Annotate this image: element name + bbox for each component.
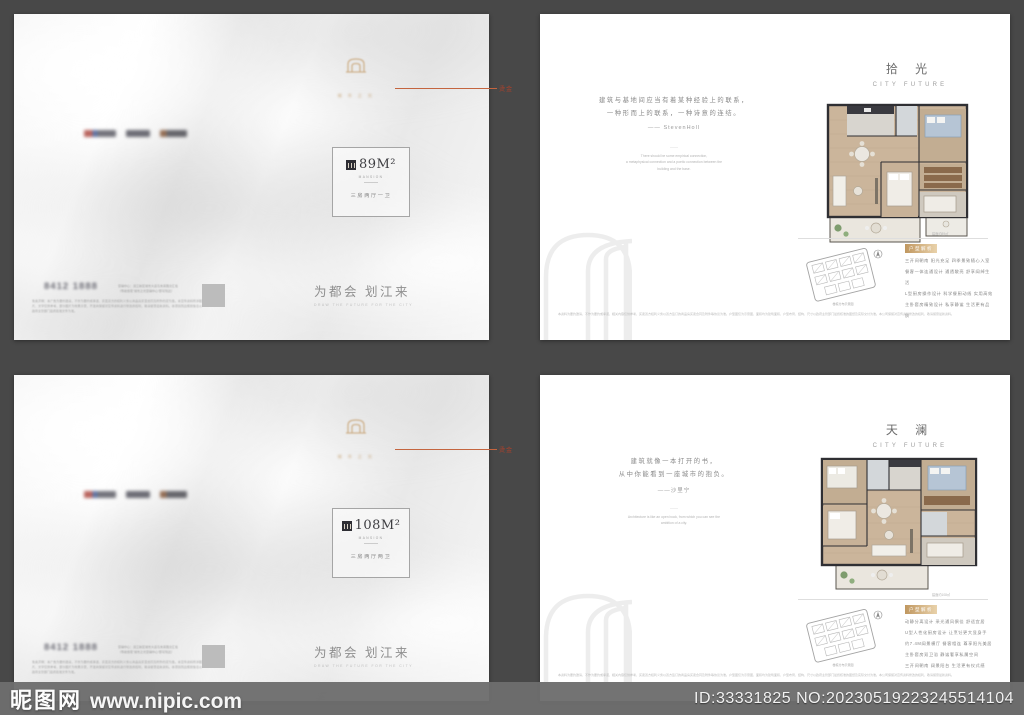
quote-divider: —— [566, 144, 782, 149]
area-badge: 108M² MANSION 三房两厅两卫 [332, 508, 410, 578]
developer-logo-3 [160, 491, 187, 498]
cover-tagline: 为都会 划江来 DRAW THE FUTURE FOR THE CITY [314, 281, 476, 307]
sales-address: 营销中心：滨江新区城市大道与未来路交汇处 （导航搜索“城市之光营销中心”即可到达… [118, 284, 202, 295]
badge-unit-type: 三房两厅两卫 [333, 553, 409, 560]
emblem-text: 城 市 之 光 [312, 93, 400, 99]
cover-page-108: 城 市 之 光 108M² MANSION 三房两厅两卫 为都会 划江来 DRA… [14, 375, 489, 701]
quote-line-1: 建筑就像一本打开的书， [586, 455, 762, 468]
plan-page-89: 建筑与基地间应当有着某种经验上的联系， 一种形而上的联系，一种诗意的连结。 ——… [540, 14, 1010, 340]
quote-line-2: 从中你能看到一座城市的抱负。 [586, 468, 762, 481]
cover-legal-text: 免责声明：本广告为要约邀请，不作为要约或承诺，买卖双方的权利义务以商品房买卖合同… [32, 299, 202, 314]
feature-line: 主卧套房双卫浴 静谧奢享私属空间 [905, 649, 993, 660]
feature-label: 户型解析 [905, 605, 937, 614]
developer-logos [84, 130, 187, 137]
gold-emblem: 城 市 之 光 [312, 56, 400, 99]
key-plan [800, 606, 886, 664]
watermark-bar: 昵图网 www.nipic.com ID:33331825 NO:2023051… [0, 682, 1024, 715]
tagline-cn: 为都会 划江来 [314, 642, 476, 661]
emblem-text: 城 市 之 光 [312, 454, 400, 460]
plan-page-108: 建筑就像一本打开的书， 从中你能看到一座城市的抱负。 ——沙里宁 —— Arch… [540, 375, 1010, 701]
tagline-en: DRAW THE FUTURE FOR THE CITY [314, 664, 476, 668]
plan-caption: 建面约108㎡ [932, 592, 950, 597]
area-badge: 89M² MANSION 三房两厅一卫 [332, 147, 410, 217]
badge-logo-icon [346, 160, 356, 170]
cover-legal-text: 免责声明：本广告为要约邀请，不作为要约或承诺，买卖双方的权利义务以商品房买卖合同… [32, 660, 202, 675]
arch-motif [540, 219, 632, 340]
developer-logo-1 [84, 130, 116, 137]
badge-area: 89M² [359, 157, 396, 172]
pavilion-icon [344, 417, 368, 435]
badge-brand: MANSION [333, 536, 409, 540]
hot-stamp-callout-line [395, 449, 497, 450]
quote-line-1: 建筑与基地间应当有着某种经验上的联系， [586, 94, 762, 107]
feature-label: 户型解析 [905, 244, 937, 253]
keyplan-caption: 楼栋分布示意图 [798, 663, 888, 667]
plan-caption: 建面约89㎡ [932, 231, 948, 236]
tagline-cn: 为都会 划江来 [314, 281, 476, 300]
qr-code-placeholder [202, 284, 225, 307]
feature-line: 动静分离设计 采光通风俱佳 舒适宜居 [905, 616, 993, 627]
developer-logo-1 [84, 491, 116, 498]
developer-logos [84, 491, 187, 498]
hot-stamp-callout-line [395, 88, 497, 89]
badge-unit-type: 三房两厅一卫 [333, 192, 409, 199]
floor-plan-89 [820, 100, 975, 246]
page-title-en: CITY FUTURE [858, 82, 962, 88]
quote-block: 建筑就像一本打开的书， 从中你能看到一座城市的抱负。 ——沙里宁 [586, 455, 762, 494]
image-id-text: ID:33331825 NO:20230519223245514104 [694, 690, 1014, 708]
feature-line: 主卧套房精致设计 私享静谧 生活更有品质 [905, 299, 993, 321]
hot-stamp-label: 烫金 [499, 445, 513, 454]
badge-area: 108M² [355, 518, 401, 533]
page-title-en: CITY FUTURE [858, 443, 962, 449]
north-arrow-icon [874, 250, 882, 258]
hot-stamp-label: 烫金 [499, 84, 513, 93]
page-title: 拾 光 CITY FUTURE [858, 60, 962, 88]
nipic-url: www.nipic.com [90, 690, 242, 714]
north-arrow-icon [874, 611, 882, 619]
section-divider [798, 599, 988, 600]
page-disclaimer: 本资料为要约邀请，不作为要约或承诺，相关内容仅供参考，买卖双方权利义务以双方签订… [558, 673, 992, 678]
floor-plan-108 [814, 453, 984, 593]
quote-divider: —— [566, 505, 782, 510]
sales-phone: 8412 1888 [44, 281, 98, 292]
quote-attribution: ——沙里宁 [586, 486, 762, 494]
feature-line: U型人性化厨房设计 让烹饪更大显身手 [905, 627, 993, 638]
feature-line: 约7.4M阔景横厅 餐客相连 尊享阳光美居 [905, 638, 993, 649]
feature-list: 动静分离设计 采光通风俱佳 舒适宜居 U型人性化厨房设计 让烹饪更大显身手 约7… [905, 616, 993, 671]
developer-logo-2 [126, 491, 150, 498]
nipic-logo: 昵图网 [10, 683, 82, 715]
page-disclaimer: 本资料为要约邀请，不作为要约或承诺，相关内容仅供参考，买卖双方权利义务以双方签订… [558, 312, 992, 317]
sales-address: 营销中心：滨江新区城市大道与未来路交汇处 （导航搜索“城市之光营销中心”即可到达… [118, 645, 202, 656]
qr-code-placeholder [202, 645, 225, 668]
key-plan [800, 245, 886, 303]
cover-tagline: 为都会 划江来 DRAW THE FUTURE FOR THE CITY [314, 642, 476, 668]
gold-emblem: 城 市 之 光 [312, 417, 400, 460]
page-title: 天 澜 CITY FUTURE [858, 421, 962, 449]
badge-divider [364, 543, 378, 544]
developer-logo-2 [126, 130, 150, 137]
quote-english: —— There should be some empirical connec… [566, 144, 782, 172]
section-divider [798, 238, 988, 239]
quote-line-2: 一种形而上的联系，一种诗意的连结。 [586, 107, 762, 120]
tagline-en: DRAW THE FUTURE FOR THE CITY [314, 303, 476, 307]
badge-divider [364, 182, 378, 183]
feature-line: L型厨房操作设计 科学餐厨动线 实用高效 [905, 288, 993, 299]
stock-preview-board: 城 市 之 光 89M² MANSION 三房两厅一卫 为都会 划江来 DRAW… [0, 0, 1024, 715]
badge-brand: MANSION [333, 175, 409, 179]
badge-logo-icon [342, 521, 352, 531]
quote-attribution: —— StevenHoll [586, 125, 762, 131]
pavilion-icon [344, 56, 368, 74]
page-title-cn: 拾 光 [858, 60, 962, 77]
quote-english: —— Architecture is like an open book, fr… [566, 505, 782, 527]
keyplan-caption: 楼栋分布示意图 [798, 302, 888, 306]
feature-line: 三开间朝南 阳光充足 四季景致随心入室 [905, 255, 993, 266]
page-title-cn: 天 澜 [858, 421, 962, 438]
cover-page-89: 城 市 之 光 89M² MANSION 三房两厅一卫 为都会 划江来 DRAW… [14, 14, 489, 340]
sales-phone: 8412 1888 [44, 642, 98, 653]
quote-block: 建筑与基地间应当有着某种经验上的联系， 一种形而上的联系，一种诗意的连结。 ——… [586, 94, 762, 131]
developer-logo-3 [160, 130, 187, 137]
feature-line: 餐客一体连通设计 通透敞亮 舒享阔绰生活 [905, 266, 993, 288]
feature-line: 三开间朝南 阔景阳台 生活更有仪式感 [905, 660, 993, 671]
